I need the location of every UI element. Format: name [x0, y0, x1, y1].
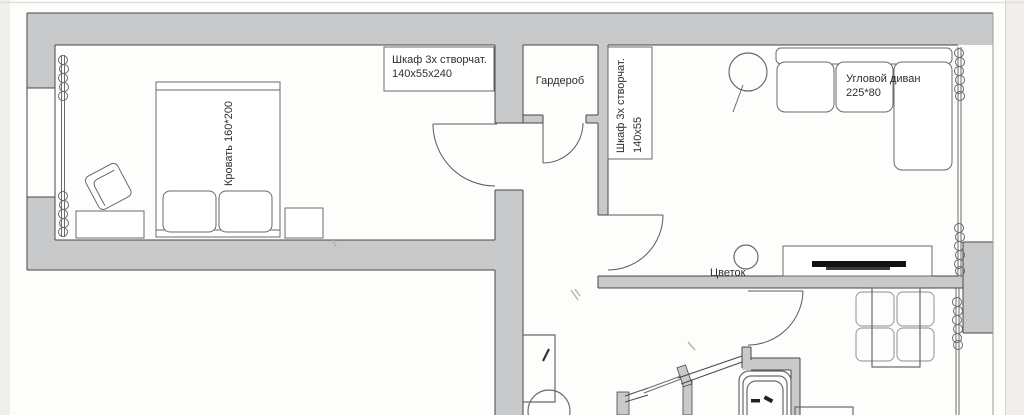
- wardrobe-side: Шкаф 3х створчат. 140х55: [608, 47, 652, 159]
- right-margin: [1006, 0, 1024, 415]
- sofa-label-line1: Угловой диван: [846, 73, 920, 85]
- wall-garderob-bottom-left: [523, 115, 543, 123]
- tv-base: [826, 267, 890, 270]
- flower-label: Цветок: [710, 267, 746, 279]
- wall-livingroom-bottom: [598, 276, 963, 288]
- wall-livingroom-left-upper: [598, 45, 608, 115]
- dresser: [76, 211, 144, 238]
- garderob-label: Гардероб: [536, 75, 584, 87]
- wall-livingroom-left-lower: [598, 123, 608, 215]
- bed-label: Кровать 160*200: [223, 101, 235, 186]
- wall-left-upper: [27, 13, 55, 88]
- wall-corridor-lower: [495, 190, 523, 415]
- nightstand-right: [285, 208, 323, 238]
- bathtub-faucet: [751, 399, 760, 403]
- left-margin: [0, 0, 10, 415]
- pillow-right: [219, 191, 272, 232]
- wardrobe-top: Шкаф 3х створчат. 140х55х240: [384, 47, 494, 91]
- wall-right-pier: [963, 242, 993, 333]
- tv-screen: [812, 261, 906, 267]
- wall-bedroom-bottom: [27, 240, 523, 270]
- floorplan-drawing: Шкаф 3х створчат. 140х55х240 Кровать 160…: [0, 0, 1024, 415]
- wall-garderob-bottom-right: [586, 115, 608, 123]
- sofa-cushion-1: [777, 62, 834, 112]
- wall-corridor-upper: [495, 45, 523, 123]
- wardrobe-side-label-line1: Шкаф 3х створчат.: [615, 58, 627, 153]
- wall-top: [27, 13, 993, 45]
- tv-stand: [783, 246, 932, 276]
- sofa-label-line2: 225*80: [846, 87, 881, 99]
- floorplan-canvas: Шкаф 3х створчат. 140х55х240 Кровать 160…: [0, 0, 1024, 415]
- wardrobe-top-label-line1: Шкаф 3х створчат.: [392, 54, 487, 66]
- wardrobe-top-label-line2: 140х55х240: [392, 68, 452, 80]
- pillow-left: [163, 191, 216, 232]
- wardrobe-side-label-line2: 140х55: [632, 117, 644, 153]
